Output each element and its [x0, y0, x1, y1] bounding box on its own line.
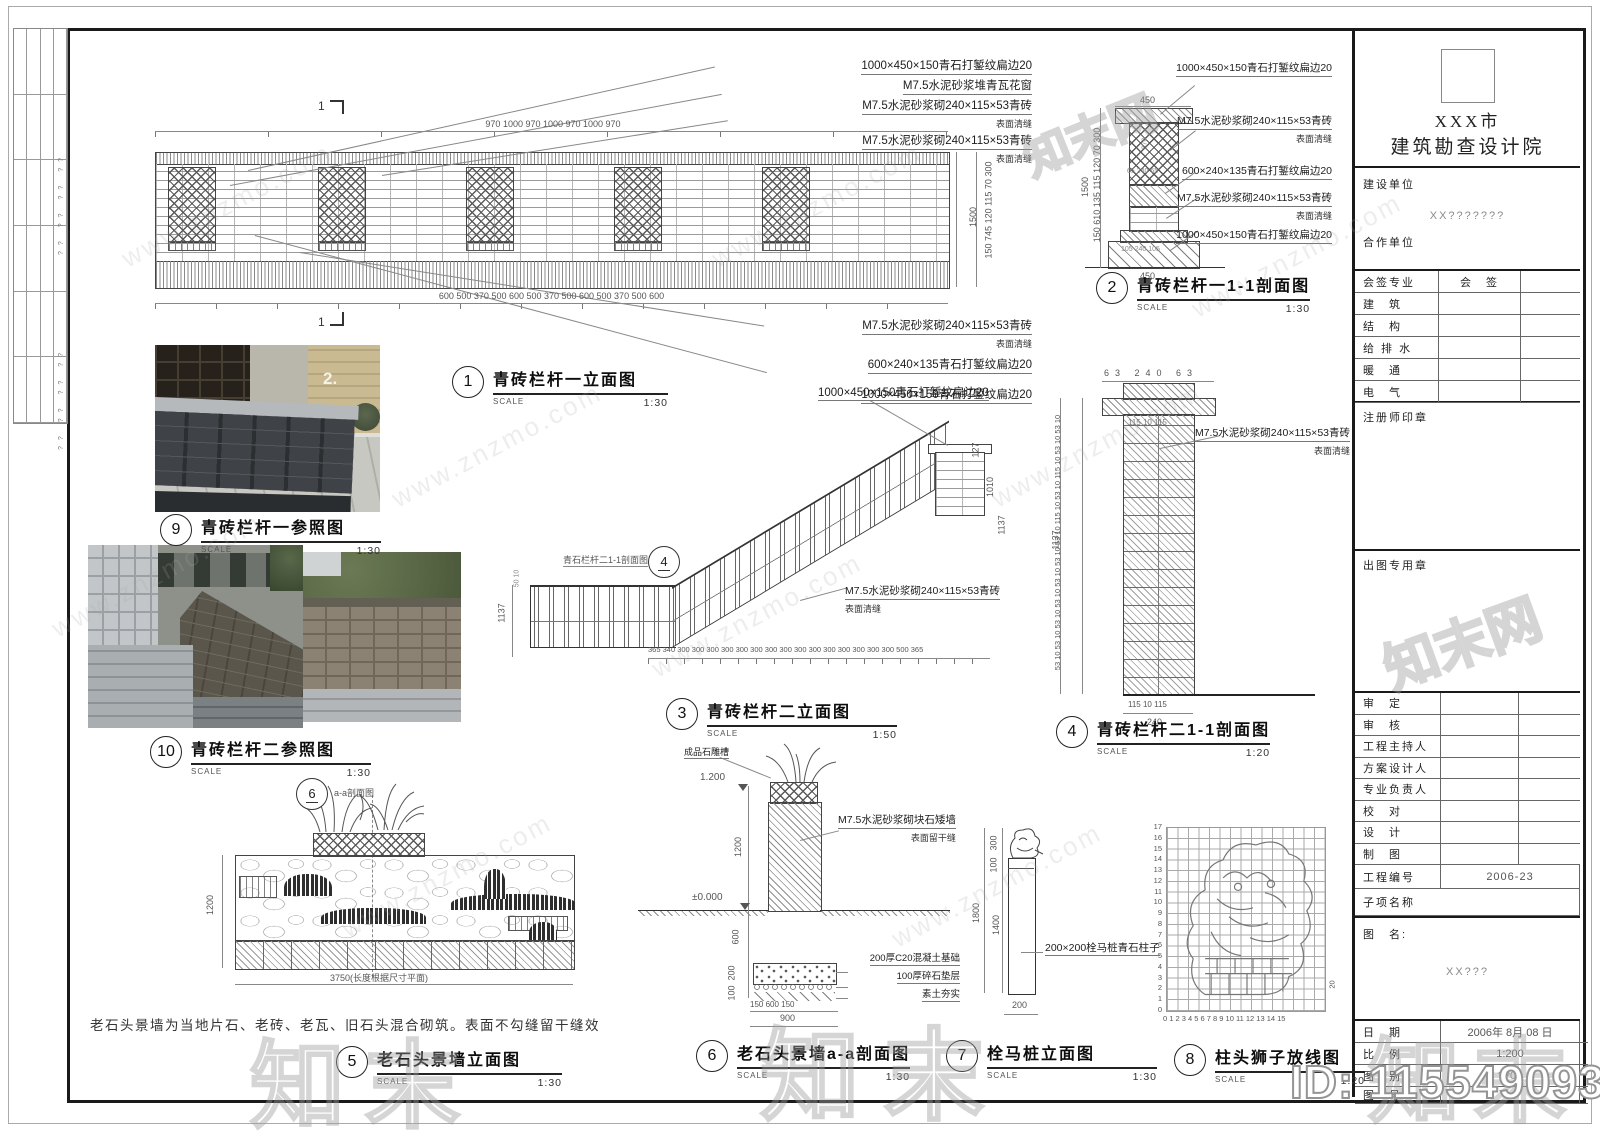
dim-line [750, 1026, 838, 1032]
level-zero: ±0.000 [692, 892, 723, 903]
detail-number-bubble: 3 [666, 698, 698, 730]
photo-wall [155, 411, 355, 494]
lattice-sill [318, 241, 366, 251]
owner-value: XX??????? [1355, 210, 1580, 222]
personnel-drafter: 制 图 [1355, 844, 1441, 866]
ground-line [1085, 267, 1225, 268]
project-no-label: 工程编号 [1355, 865, 1441, 889]
dim-bottom: 150 600 150 [750, 1000, 795, 1009]
personnel-discipline-lead: 专业负责人 [1355, 779, 1441, 801]
detail-number-bubble: 6 [696, 1040, 728, 1072]
reference-photo-railing-1: 2. [155, 345, 380, 512]
binding-strip-marks: ?? ?? ?? ?? [58, 152, 65, 255]
lattice-panel [318, 167, 366, 243]
photo-building-sign: 2. [323, 369, 337, 389]
photo-steps-lower [193, 697, 303, 728]
ground-hatch [820, 911, 950, 916]
owner-label: 建设单位 [1363, 176, 1415, 192]
dim-inner: 370 [1141, 138, 1148, 150]
title-block-personnel: 审 定 审 核 工程主持人 方案设计人 专业负责人 校 对 设 计 制 图 工程… [1355, 693, 1580, 918]
grid-axis-y: 17 16 15 14 13 12 11 10 9 8 7 6 5 4 3 2 … [1146, 822, 1162, 1016]
detail-label-4: 4 青砖栏杆二1-1剖面图 SCALE1:20 [1056, 716, 1270, 759]
annotations: M7.5水泥砂浆砌240×115×53青砖 表面清缝 [1215, 425, 1350, 457]
annotations: 1000×450×150青石打錾纹扁边20 M7.5水泥砂浆砌240×115×5… [1190, 60, 1332, 244]
detail-number-bubble: 1 [452, 366, 484, 398]
personnel-scheme-designer: 方案设计人 [1355, 758, 1441, 780]
brick-course [1129, 206, 1179, 232]
dim-right: 150 745 120 115 70 300 [983, 162, 993, 259]
dim-line [1115, 106, 1191, 112]
annotation: 200×200栓马桩青石柱子 [1045, 940, 1160, 955]
institute-logo-box [1441, 49, 1495, 103]
dim-total: 1800 [971, 903, 981, 923]
section-marker-bracket [330, 100, 344, 114]
planting-sketch [758, 742, 840, 784]
sign-row-struct: 结 构 [1355, 315, 1439, 337]
annotation: 1000×450×150青石打錾纹扁边20 [818, 384, 989, 400]
detail-number-bubble: 4 [1056, 716, 1088, 748]
detail-number-bubble: 8 [1174, 1044, 1206, 1076]
sub-name-label: 子项名称 [1355, 889, 1441, 916]
title-block-drawing-name: 图 名: XX??? [1355, 918, 1580, 1021]
detail-number-bubble: 7 [946, 1040, 978, 1072]
number-label: 图 号 [1355, 1087, 1441, 1104]
title-block-issue-stamp: 出图专用章 [1355, 551, 1580, 693]
brick-field [156, 164, 949, 262]
dim-line [748, 786, 754, 998]
end-pillar [935, 452, 985, 516]
title-block-institute: XXX市 建筑勘查设计院 [1355, 31, 1580, 168]
dim-top2: 115 10 115 [1128, 418, 1167, 427]
dim-total: 1137 [1051, 530, 1061, 549]
issue-stamp-label: 出图专用章 [1363, 557, 1428, 573]
detail-label-10: 10 青砖栏杆二参照图 SCALE1:30 [150, 736, 371, 779]
detail-number-bubble: 2 [1096, 272, 1128, 304]
drawing-name-label: 图 名: [1363, 926, 1407, 942]
date-value: 2006年 8月 08 日 [1441, 1021, 1580, 1043]
rail-run-level [530, 585, 676, 648]
tile-inlay [529, 922, 557, 940]
dim-line [235, 984, 573, 990]
pier-lattice [1129, 122, 1179, 186]
dim-line [1004, 1014, 1038, 1020]
lattice-panel [168, 167, 216, 243]
tile-inlay [321, 908, 426, 924]
date-label: 日 期 [1355, 1021, 1441, 1043]
sign-header-label: 会签专业 [1355, 271, 1439, 293]
personnel-project-lead: 工程主持人 [1355, 736, 1441, 758]
detail-label-8: 8 柱头狮子放线图 SCALE1:20 [1174, 1044, 1365, 1087]
dim-right: 1137 [997, 515, 1007, 534]
dim-bottom: 200 [1012, 1000, 1027, 1010]
photo-wall-coping [303, 598, 461, 607]
dim-top: 450 [1140, 95, 1155, 105]
detail-label-5: 5 老石头景墙立面图 SCALE1:30 [336, 1046, 562, 1089]
grid-side-dim: 20 [1328, 980, 1337, 988]
drawing-name-value: XX??? [1355, 966, 1580, 978]
lattice-sill [614, 241, 662, 251]
wall-elevation-body [155, 152, 950, 289]
dim-left: 1137 [497, 603, 507, 622]
leader-line [1021, 952, 1043, 953]
wall-base-course [235, 940, 575, 970]
lattice-sill [168, 241, 216, 251]
dim-left: 600 [731, 929, 741, 944]
detail-number-bubble: 10 [150, 736, 182, 768]
lion-outline-sketch [1172, 833, 1322, 1005]
tile-inlay [484, 869, 506, 899]
tile-inlay [451, 894, 576, 910]
dim-small: 50 10 [513, 570, 520, 588]
planter-box [770, 782, 818, 804]
section-marker-top: 1 [318, 99, 325, 113]
detail-label-6: 6 老石头景墙a-a剖面图 SCALE1:30 [696, 1040, 910, 1083]
sign-row-arch: 建 筑 [1355, 293, 1439, 315]
ref-bubble: 6 [296, 778, 328, 810]
personnel-approver: 审 定 [1355, 693, 1441, 715]
dim-left: 1200 [205, 895, 215, 915]
reference-photo-railing-2b [303, 552, 461, 722]
detail-label-9: 9 青砖栏杆一参照图 SCALE1:30 [160, 514, 381, 557]
dim-total: 1500 [968, 207, 978, 227]
detail-label-7: 7 栓马桩立面图 SCALE1:30 [946, 1040, 1157, 1083]
personnel-designer: 设 计 [1355, 822, 1441, 844]
dim-left: 100 [727, 985, 737, 1000]
base-band [156, 261, 949, 288]
sign-row-hvac: 暖 通 [1355, 359, 1439, 381]
dim-top: 63 240 63 [1104, 368, 1198, 378]
section-marker-bottom: 1 [318, 315, 325, 329]
dim-right: 1010 [985, 477, 995, 497]
sign-header-value: 会 签 [1439, 271, 1521, 293]
detail-label-1: 1 青砖栏杆一立面图 SCALE1:30 [452, 366, 668, 409]
planter-box [313, 833, 425, 857]
project-no-value: 2006-23 [1441, 865, 1580, 889]
dim-left: 1200 [733, 837, 743, 857]
drawing-sheet: ?? ?? ?? ?? ?? ?? ?? ?? 970 1000 970 100… [0, 0, 1600, 1131]
dim-left: 1400 [991, 915, 1001, 935]
title-block: XXX市 建筑勘查设计院 建设单位 XX??????? 合作单位 会签专业 会 … [1355, 31, 1580, 1094]
dim-inner: 105 240 105 [1121, 246, 1160, 253]
sign-row-plumbing: 给 排 水 [1355, 337, 1439, 359]
detail-label-3: 3 青砖栏杆二立面图 SCALE1:50 [666, 698, 897, 741]
category-value: ??01 [1441, 1065, 1580, 1087]
detail-number-bubble: 9 [160, 514, 192, 546]
level-marker [738, 784, 748, 791]
photo-building-light [88, 545, 158, 647]
number-value [1441, 1087, 1580, 1104]
dim-line [155, 303, 948, 309]
wall-shaft [768, 802, 822, 912]
title-block-registered-stamp: 注册师印章 [1355, 403, 1580, 551]
institute-name-line2: 建筑勘查设计院 [1355, 132, 1580, 159]
sub-name-value [1441, 889, 1580, 916]
dim-inner: 65 240 65 [1127, 168, 1158, 175]
title-block-units: 建设单位 XX??????? 合作单位 [1355, 168, 1580, 271]
level-top: 1.200 [700, 772, 725, 783]
dim-line [512, 585, 518, 657]
ground-line [1123, 694, 1315, 696]
dim-line [222, 855, 228, 968]
annotations: M7.5水泥砂浆砌240×115×53青砖 表面清缝 [845, 583, 1000, 615]
annotation-planter: 成品石雕槽 [684, 745, 729, 758]
title-block-footer: 日 期 2006年 8月 08 日 比 例 1:200 图 别 ??01 图 号 [1355, 1021, 1580, 1099]
dim-line [1102, 381, 1214, 387]
personnel-checker: 校 对 [1355, 801, 1441, 823]
lattice-sill [466, 241, 514, 251]
detail-number-bubble: 5 [336, 1046, 368, 1078]
dim-left: 200 [727, 965, 737, 980]
concrete-footing [753, 963, 837, 985]
detail-label-2: 2 青砖栏杆一1-1剖面图 SCALE1:30 [1096, 272, 1310, 315]
dim-bottom: 3750(长度根据尺寸平面) [330, 971, 428, 984]
dim-bottom: 115 10 115 [1128, 700, 1167, 709]
annotations-wall: M7.5水泥砂浆砌块石矮墙 表面留干缝 [838, 812, 956, 844]
ref-label: 青石栏杆二1-1剖面图 [563, 553, 648, 566]
lattice-panel [614, 167, 662, 243]
brick-inlay [239, 876, 277, 898]
post-chamfer-line [1008, 868, 1034, 869]
binding-strip-marks: ?? ?? ?? ?? [58, 347, 65, 450]
title-block-sign-table: 会签专业 会 签 建 筑 结 构 给 排 水 暖 通 电 气 [1355, 271, 1580, 403]
personnel-reviewer: 审 核 [1355, 715, 1441, 737]
dim-row-bottom: 600 500 370 500 600 500 370 500 600 500 … [160, 291, 943, 301]
dim-line [1082, 398, 1088, 694]
photo-stone-wall [180, 591, 303, 713]
category-label: 图 别 [1355, 1065, 1441, 1087]
dim-total: 1500 [1080, 177, 1090, 197]
section-marker-bracket [330, 312, 344, 326]
lattice-panel [762, 167, 810, 243]
lattice-sill [762, 241, 810, 251]
ref-bubble: 4 [648, 546, 680, 578]
material-note: 老石头景墙为当地片石、老砖、老瓦、旧石头混合砌筑。表面不勾缝留干缝效 [90, 1014, 600, 1034]
ratio-value: 1:200 [1441, 1043, 1580, 1065]
dim-bottom2: 900 [780, 1013, 795, 1023]
lion-finial-sketch [1005, 826, 1045, 860]
dim-right: 127 [971, 442, 981, 457]
ratio-label: 比 例 [1355, 1043, 1441, 1065]
photo-steps [303, 689, 461, 722]
stone-wall-body [235, 855, 575, 942]
photo-stone-wall [303, 607, 461, 689]
lattice-panel [466, 167, 514, 243]
sign-row-electric: 电 气 [1355, 381, 1439, 403]
grid-axis-x: 0 1 2 3 4 5 6 7 8 9 10 11 12 13 14 15 [1163, 1014, 1333, 1023]
dim-line [956, 152, 962, 287]
leader-line [563, 566, 648, 567]
pier-shaft [1123, 414, 1195, 696]
annotations-footing: 200厚C20混凝土基础 100厚碎石垫层 素土夯实 [845, 950, 960, 1002]
tile-inlay [284, 874, 332, 896]
photo-windows [158, 553, 278, 587]
dim-left: 300 [989, 835, 999, 850]
dim-line [648, 658, 990, 664]
level-marker [740, 903, 750, 910]
annotations-top: 1000×450×150青石打錾纹扁边20 M7.5水泥砂浆堆青瓦花窗 M7.5… [718, 57, 1032, 165]
dim-row-bottom: 365 340 300 300 300 300 300 300 300 300 … [648, 645, 993, 654]
photo-steps [88, 645, 193, 728]
gravel-bed [753, 983, 835, 992]
post-shaft [1008, 858, 1036, 995]
partner-label: 合作单位 [1363, 234, 1415, 250]
registered-stamp-label: 注册师印章 [1363, 409, 1428, 425]
dim-line [984, 828, 990, 993]
reference-photo-railing-2a [88, 545, 303, 728]
dim-left: 150 610 135 115 120 70 300 [1092, 128, 1102, 242]
dim-left: 100 [989, 857, 999, 872]
